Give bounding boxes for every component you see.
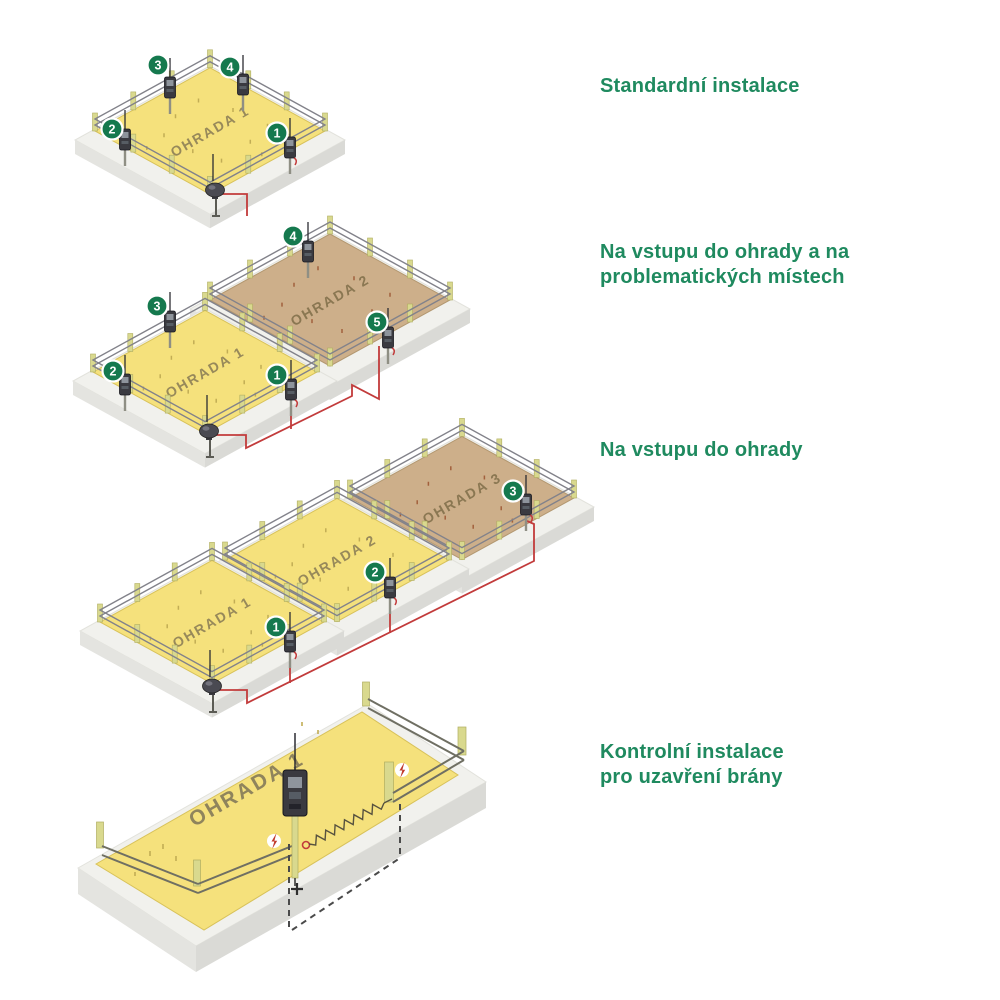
fence-post [409, 563, 414, 581]
fence-post [460, 418, 465, 436]
fence-post [572, 480, 577, 498]
title-line: Na vstupu do ohrady a na [600, 240, 849, 265]
fence-post [128, 334, 133, 352]
badge-3: 3 [148, 55, 169, 76]
title-line: Kontrolní instalace [600, 740, 784, 765]
fence-post [297, 501, 302, 519]
badge-2: 2 [365, 562, 386, 583]
fence-post [372, 583, 377, 601]
fence-post [210, 542, 215, 560]
fence-post [422, 521, 427, 539]
section-title-entrance-only: Na vstupu do ohrady [600, 438, 803, 463]
badge-number: 2 [372, 566, 379, 580]
fence-post [240, 395, 245, 413]
fence-post [288, 326, 293, 344]
badge-number: 1 [274, 369, 281, 383]
fence-post [91, 354, 96, 372]
fence-post [131, 134, 136, 152]
fence-post [460, 542, 465, 560]
fence-post [208, 282, 213, 300]
badge-1: 1 [267, 365, 288, 386]
fence-post [335, 604, 340, 622]
fence-post [497, 439, 502, 457]
badge-number: 2 [109, 123, 116, 137]
fence-post [135, 584, 140, 602]
fence-post [368, 238, 373, 256]
title-line: pro uzavření brány [600, 765, 784, 790]
badge-number: 3 [155, 59, 162, 73]
fence-post [165, 395, 170, 413]
fence-post [98, 604, 103, 622]
fence-post [323, 113, 328, 131]
fence-post [422, 439, 427, 457]
title-line: Na vstupu do ohrady [600, 438, 803, 463]
badge-4: 4 [220, 57, 241, 78]
fence-post [385, 460, 390, 478]
scene-entrance-only: OHRADA 3OHRADA 2OHRADA 1123 [80, 418, 594, 717]
fence-post [284, 584, 289, 602]
scene-standard-installation: OHRADA 13421 [75, 50, 345, 229]
badge-1: 1 [266, 617, 287, 638]
section-title-standard-installation: Standardní instalace [600, 74, 800, 99]
fence-post [322, 604, 327, 622]
section-title-entrance-and-problem-spots: Na vstupu do ohrady a na problematických… [600, 240, 849, 290]
badge-4: 4 [283, 226, 304, 247]
badge-number: 3 [510, 485, 517, 499]
fence-post [447, 542, 452, 560]
installation-diagram: OHRADA 1 [0, 0, 1000, 1000]
fence-post [448, 282, 453, 300]
fence-post [534, 460, 539, 478]
scene-gate-closing-control: OHRADA 1 [78, 682, 486, 972]
scene-entrance-and-problem-spots: OHRADA 2OHRADA 143521 [73, 216, 470, 468]
fence-post [135, 625, 140, 643]
fence-post [131, 92, 136, 110]
fence-post [277, 334, 282, 352]
badge-1: 1 [267, 123, 288, 144]
badge-number: 2 [110, 365, 117, 379]
badge-3: 3 [503, 481, 524, 502]
fence-post [203, 292, 208, 310]
badge-number: 1 [274, 127, 281, 141]
fence-post [534, 501, 539, 519]
badge-number: 3 [154, 300, 161, 314]
badge-2: 2 [102, 119, 123, 140]
fence-post [409, 522, 414, 540]
fence-post [248, 260, 253, 278]
fence-post [246, 155, 251, 173]
fence-post [172, 645, 177, 663]
fence-post [172, 563, 177, 581]
badge-number: 1 [273, 621, 280, 635]
fence-post [297, 583, 302, 601]
fence-post [247, 645, 252, 663]
fence-post [247, 563, 252, 581]
fence-post [372, 501, 377, 519]
fence-post [328, 348, 333, 366]
title-line: problematických místech [600, 265, 849, 290]
fence-post [408, 260, 413, 278]
section-title-gate-closing-control: Kontrolní instalace pro uzavření brány [600, 740, 784, 790]
page: OHRADA 1 [0, 0, 1000, 1000]
fence-post [248, 304, 253, 322]
fence-post [284, 92, 289, 110]
badge-number: 4 [290, 230, 297, 244]
fence-post [169, 155, 174, 173]
badge-number: 5 [374, 316, 381, 330]
badge-5: 5 [367, 312, 388, 333]
fence-post [335, 480, 340, 498]
badge-2: 2 [103, 361, 124, 382]
fence-post [260, 522, 265, 540]
title-line: Standardní instalace [600, 74, 800, 99]
badge-number: 4 [227, 61, 234, 75]
fence-post [328, 216, 333, 234]
badge-3: 3 [147, 296, 168, 317]
fence-post [93, 113, 98, 131]
fence-post [408, 304, 413, 322]
fence-post [240, 313, 245, 331]
fence-post [497, 521, 502, 539]
fence-post [315, 354, 320, 372]
fence-post [208, 50, 213, 68]
